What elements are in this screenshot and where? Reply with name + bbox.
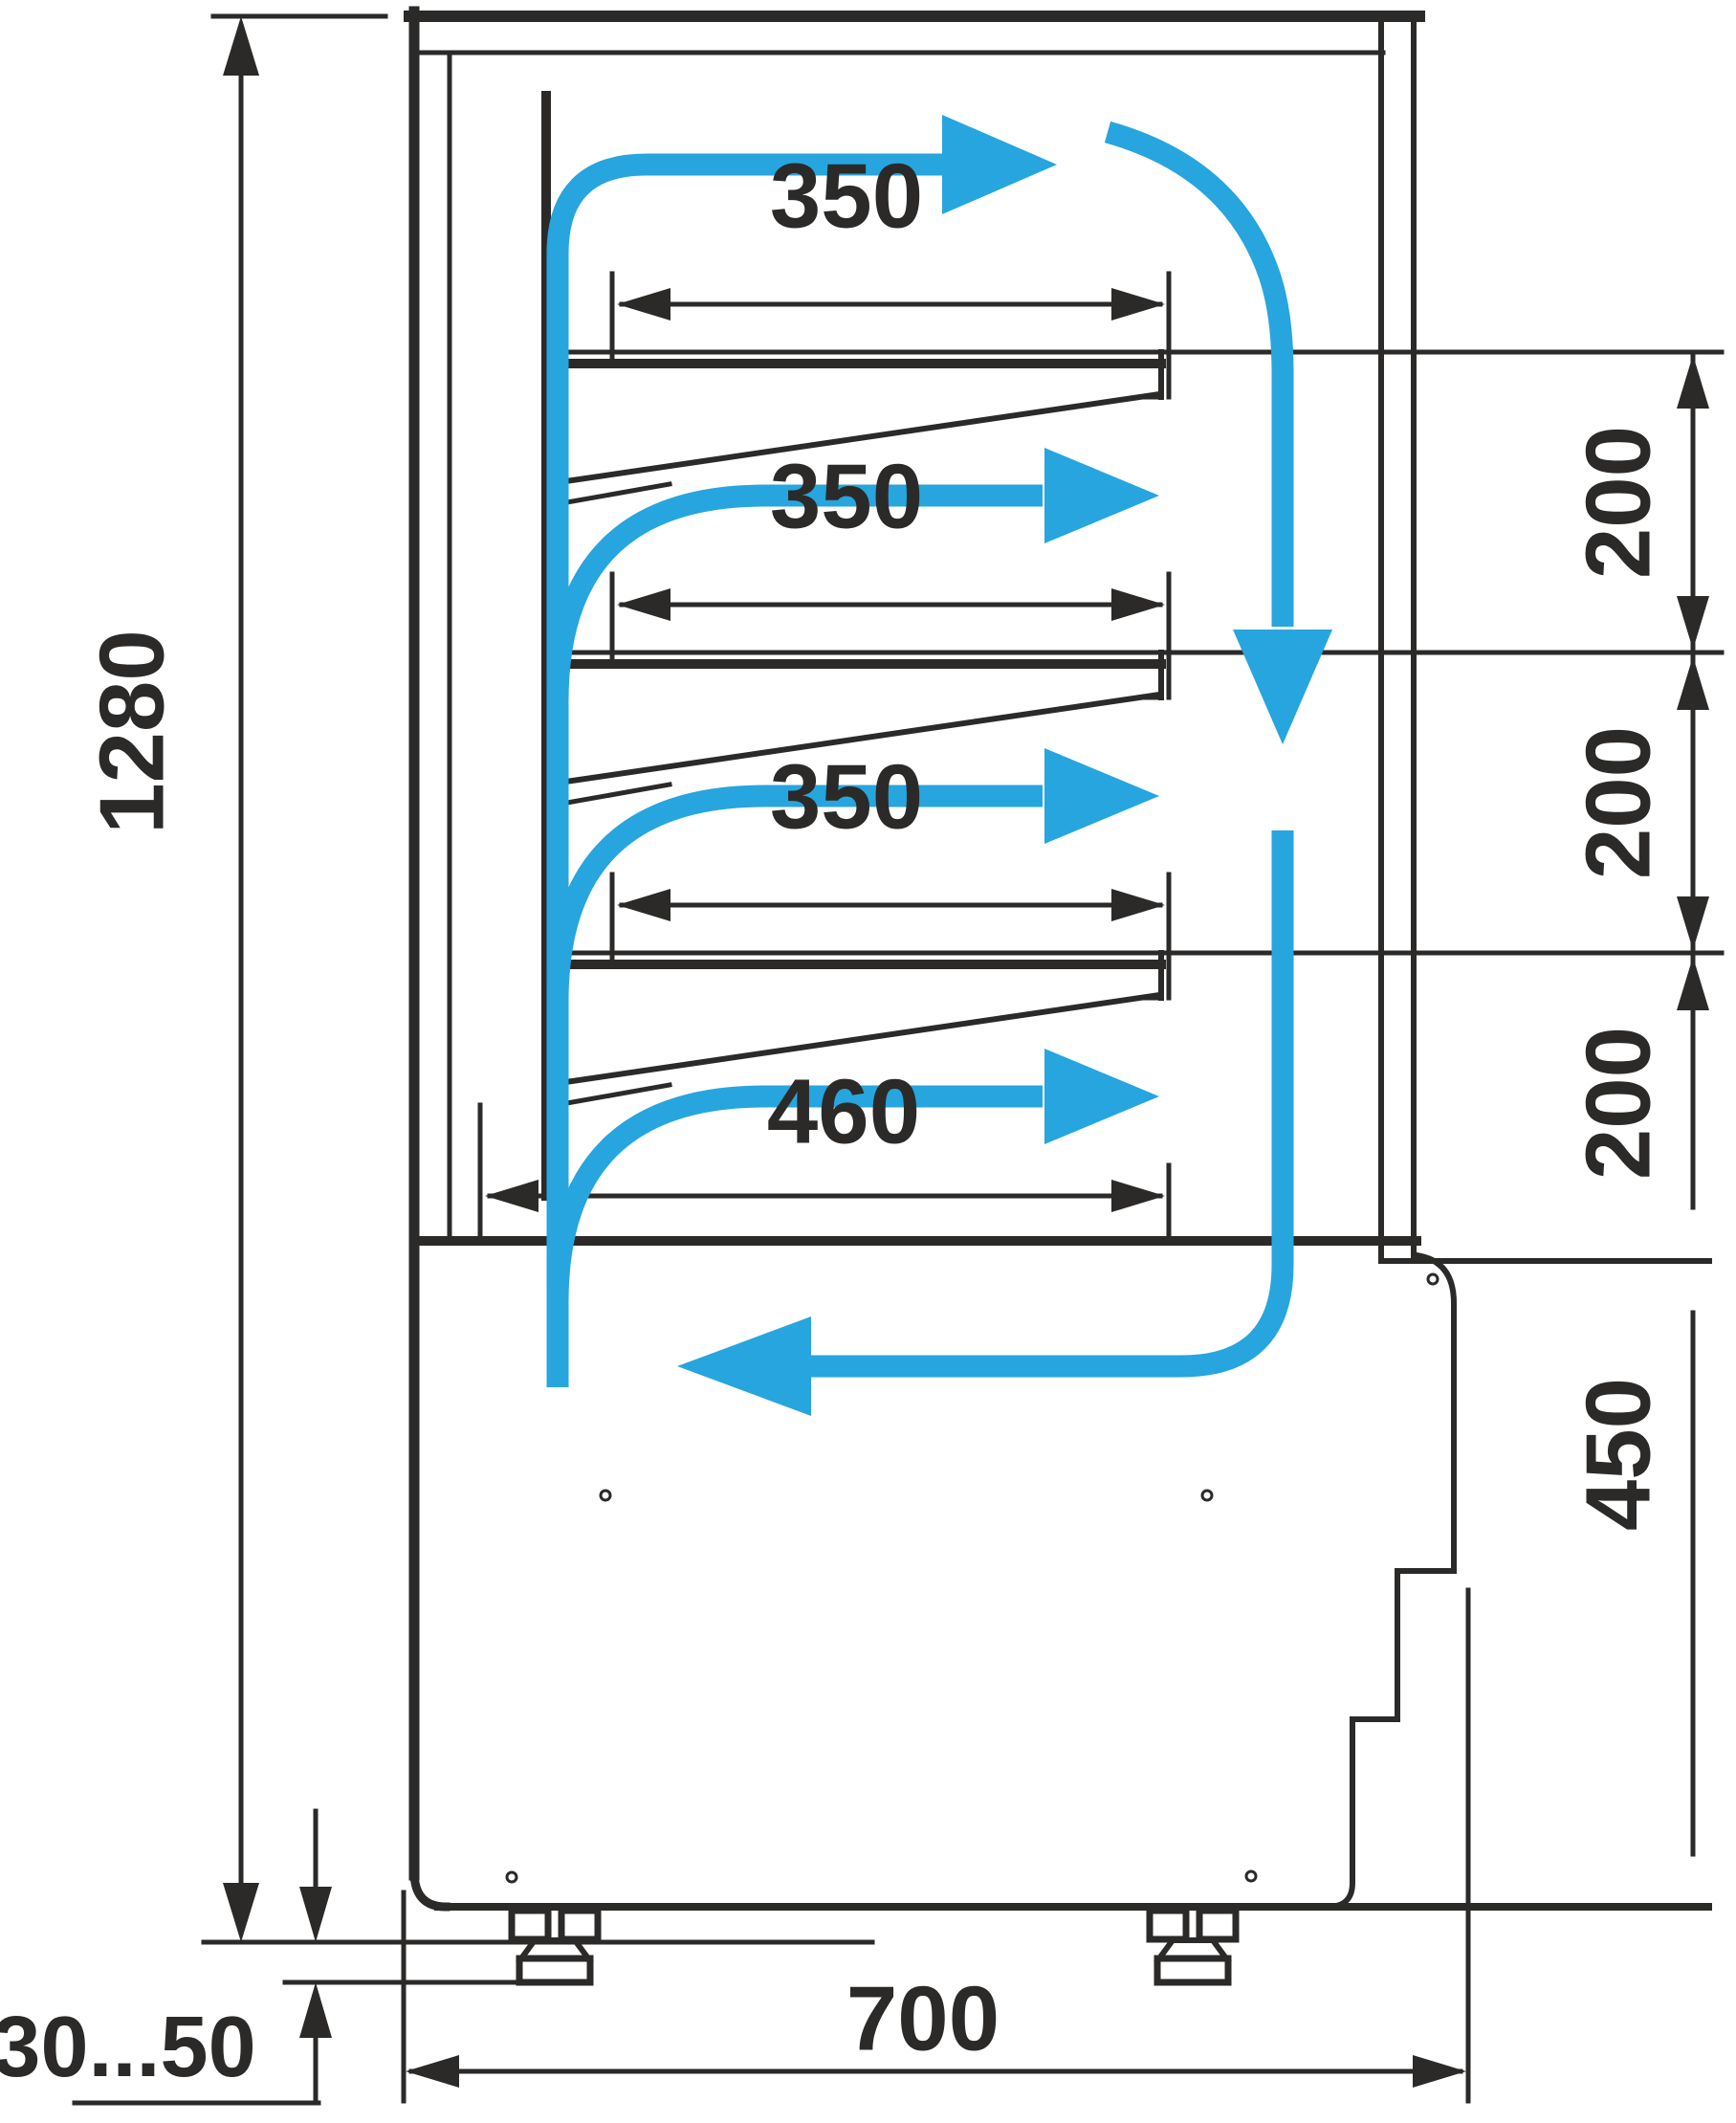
arrowhead-down [299,1887,332,1942]
foot-pad [519,1958,590,1982]
dim-total-height-label: 1280 [81,630,184,834]
foot-right [1150,1911,1236,1982]
shelf-bracket-edge [551,785,670,806]
arrowhead-up [223,16,259,76]
arrowhead-right [1111,889,1165,921]
dim-shelf-depth-label-2: 350 [770,446,923,548]
base-right-profile [1328,1255,1454,1907]
screw-hole [1428,1274,1438,1284]
dim-shelf-spacing-label-1: 200 [1568,426,1670,579]
arrowhead-right [1413,2055,1466,2088]
arrowhead-up [1677,355,1709,409]
shelf-bracket-edge [551,1085,670,1106]
flow-arrowhead-right [942,115,1057,214]
foot-bolt [1150,1911,1186,1939]
screw-hole [1202,1491,1212,1500]
dim-depth-label: 700 [846,1968,1000,2070]
arrowhead-left [485,1180,538,1212]
dimension-labels: 1280 350 350 350 460 200 200 200 450 700… [0,145,1670,2096]
arrowhead-up [1677,957,1709,1010]
foot-bolt [512,1911,548,1939]
arrowhead-right [1111,588,1165,621]
arrowhead-down [1677,596,1709,650]
dim-shelf-depth-label-1: 350 [770,145,923,248]
dimension-arrowheads [223,16,1709,2088]
screw-hole [601,1491,610,1500]
flow-arrowhead-right [1044,748,1159,844]
drawing-canvas: 1280 350 350 350 460 200 200 200 450 700… [0,0,1736,2123]
screw-hole [507,1872,516,1882]
arrowhead-right [1111,288,1165,321]
flow-arrowhead-left [677,1316,811,1416]
arrowhead-left [617,288,670,321]
foot-pad [1157,1958,1228,1982]
dim-bottom-shelf-depth-label: 460 [767,1061,920,1163]
arrowhead-left [617,588,670,621]
dim-shelf-depth-label-3: 350 [770,746,923,849]
dim-shelf-spacing-label-2: 200 [1568,726,1670,879]
arrowhead-down [1677,896,1709,950]
dimension-lines [75,16,1722,2103]
arrowhead-up [1677,656,1709,710]
arrowhead-left [617,889,670,921]
arrowhead-up [299,1982,332,2038]
foot-bolt [561,1911,598,1939]
dim-shelf-spacing-label-3: 200 [1568,1027,1670,1180]
flow-arrowhead-right [1044,448,1159,543]
airflow-descend-upper [1108,132,1283,627]
foot-bolt [1199,1911,1236,1939]
arrowhead-down [223,1883,259,1942]
display-case-diagram: 1280 350 350 350 460 200 200 200 450 700… [0,0,1736,2123]
dim-base-height-label: 450 [1568,1378,1670,1531]
cabinet-structure [409,11,1709,1907]
shelf-bracket-edge [551,484,670,505]
arrowhead-left [406,2055,459,2088]
foot-left [512,1911,598,1982]
flow-arrowhead-right [1044,1049,1159,1144]
arrowhead-right [1111,1180,1165,1212]
screw-hole [1246,1871,1256,1881]
flow-arrowhead-down [1233,630,1332,744]
dim-leg-adjustment-label: 30...50 [0,2000,256,2095]
